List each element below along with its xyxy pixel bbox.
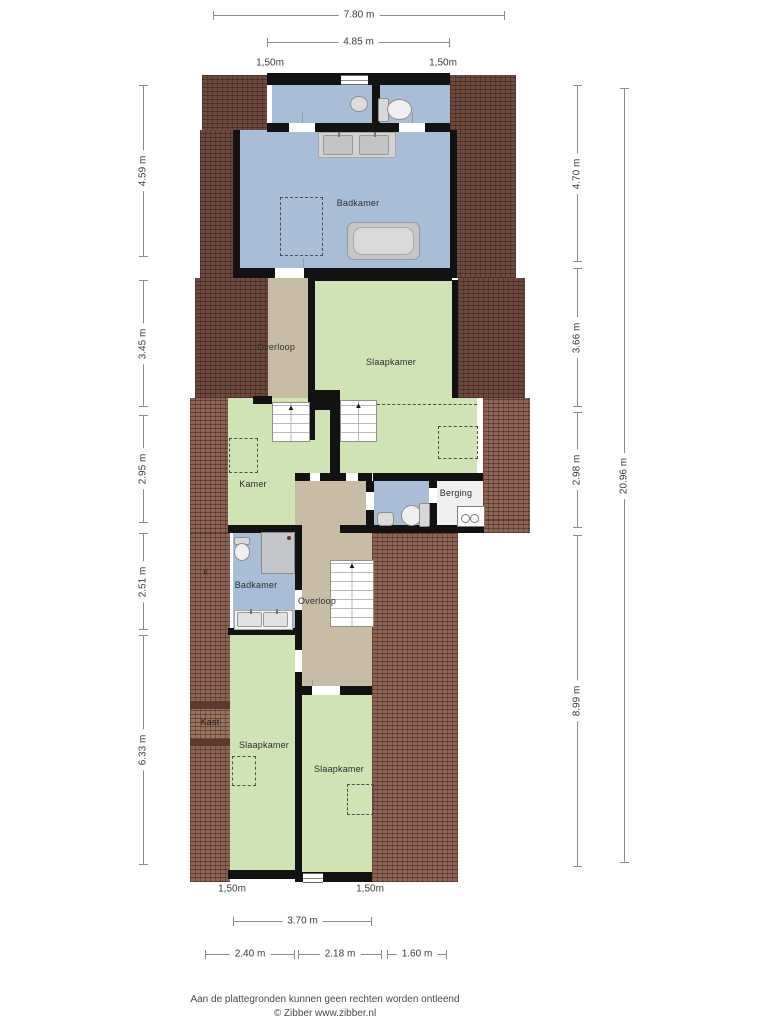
window	[303, 873, 323, 883]
dimension-line-top-780: 7.80 m	[213, 10, 505, 20]
door-opening	[289, 123, 315, 132]
dimension-label: 2.51 m	[138, 561, 149, 602]
door-opening	[275, 268, 304, 278]
door-opening	[312, 686, 340, 695]
dimension-label: 3.70 m	[282, 916, 323, 927]
dimension-line-top-485: 4.85 m	[267, 37, 450, 47]
room-label-overloop-lower: Overloop	[298, 596, 336, 606]
dimension-line-bottom-370: 3.70 m	[233, 916, 372, 926]
room-label-k-marker: K	[204, 570, 209, 577]
toilet-icon	[234, 543, 250, 561]
wall	[228, 870, 302, 879]
dimension-label: 4.59 m	[138, 151, 149, 192]
dimension-label-150-top-right: 1,50m	[429, 58, 457, 69]
dimension-label: 6.33 m	[138, 730, 149, 771]
boiler-icon	[457, 506, 485, 527]
sink-icon	[263, 612, 288, 627]
dimension-label: 7.80 m	[339, 10, 380, 21]
roof-area	[195, 278, 268, 398]
footer-credit: © Zibber www.zibber.nl	[80, 1007, 570, 1021]
door-opening	[366, 492, 374, 510]
dimension-line-right-298: 2.98 m	[572, 412, 582, 528]
wardrobe-dashed	[438, 426, 478, 459]
sink-icon	[323, 135, 353, 155]
wardrobe-dashed	[229, 438, 258, 473]
door-opening	[399, 123, 425, 132]
toilet-icon	[387, 99, 412, 120]
wall	[295, 473, 372, 481]
door-opening	[295, 650, 302, 672]
dimension-label-150-top-left: 1,50m	[256, 58, 284, 69]
wall	[450, 130, 457, 278]
door-leaf	[412, 112, 413, 123]
dimension-line-left-251: 2.51 m	[138, 533, 148, 630]
wardrobe-dashed	[347, 784, 374, 815]
staircase	[272, 402, 310, 442]
door-opening	[310, 473, 320, 481]
dimension-line-right-470: 4.70 m	[572, 85, 582, 262]
door-leaf	[302, 112, 303, 123]
dimension-label: 2.18 m	[320, 949, 361, 960]
shower-icon	[261, 532, 295, 574]
sink-icon	[359, 135, 389, 155]
dimension-line-right-2096: 20.96 m	[619, 88, 629, 863]
wall	[330, 398, 340, 478]
bathtub-icon	[347, 222, 420, 260]
room-label-berging: Berging	[440, 488, 472, 498]
floorplan-canvas: Badkamer Overloop Slaapkamer Kamer Bergi…	[0, 0, 768, 1024]
room-slaapkamer-right	[302, 694, 372, 872]
dimension-label-150-bottom-left: 1,50m	[218, 884, 246, 895]
wall	[253, 396, 272, 404]
sink-icon	[237, 612, 262, 627]
dimension-label-150-bottom-right: 1,50m	[356, 884, 384, 895]
window	[341, 75, 368, 85]
washbasin-icon	[350, 96, 368, 112]
knee-wall-dashline	[377, 404, 477, 405]
dimension-line-right-899: 8.99 m	[572, 535, 582, 867]
dimension-line-bottom-218: 2.18 m	[298, 949, 382, 959]
dimension-line-bottom-240: 2.40 m	[205, 949, 295, 959]
dimension-label: 3.45 m	[138, 323, 149, 364]
wall	[452, 280, 458, 398]
room-label-slaapkamer-left: Slaapkamer	[239, 740, 289, 750]
dimension-line-right-366: 3.66 m	[572, 268, 582, 407]
roof-area	[458, 278, 525, 398]
room-label-badkamer-small: Badkamer	[235, 580, 278, 590]
door-leaf	[303, 258, 304, 268]
dimension-line-left-345: 3.45 m	[138, 280, 148, 407]
staircase	[330, 560, 374, 627]
staircase	[340, 400, 377, 442]
wardrobe-dashed	[232, 756, 256, 786]
dimension-line-left-295: 2.95 m	[138, 415, 148, 523]
roof-area	[190, 398, 230, 533]
roof-area	[372, 533, 458, 882]
dimension-label: 20.96 m	[619, 452, 630, 498]
door-opening	[429, 488, 437, 503]
room-label-slaapkamer-upper: Slaapkamer	[366, 357, 416, 367]
dimension-label: 8.99 m	[572, 681, 583, 722]
roof-area	[483, 398, 530, 520]
room-slaapkamer-upper	[313, 280, 452, 398]
dimension-line-bottom-160: 1.60 m	[387, 949, 447, 959]
washbasin-icon	[377, 512, 394, 526]
toilet-icon	[419, 503, 430, 527]
wall	[233, 130, 240, 278]
dimension-label: 2.95 m	[138, 449, 149, 490]
dimension-label: 2.98 m	[572, 450, 583, 491]
room-overloop-upper	[268, 276, 310, 398]
dimension-line-left-459: 4.59 m	[138, 85, 148, 257]
room-label-kast: Kast	[201, 717, 220, 727]
shower-area	[280, 197, 323, 256]
footer: Aan de plattegronden kunnen geen rechten…	[80, 993, 570, 1021]
dimension-label: 3.66 m	[572, 317, 583, 358]
kast-wall	[190, 739, 232, 746]
roof-area	[450, 75, 516, 278]
room-label-overloop-upper: Overloop	[257, 342, 295, 352]
dimension-label: 1.60 m	[397, 949, 438, 960]
wall	[373, 473, 483, 481]
dimension-label: 2.40 m	[230, 949, 271, 960]
dimension-label: 4.85 m	[338, 37, 379, 48]
room-label-slaapkamer-right: Slaapkamer	[314, 764, 364, 774]
wall	[295, 533, 302, 882]
door-leaf	[312, 680, 313, 686]
wall	[308, 274, 452, 281]
footer-disclaimer: Aan de plattegronden kunnen geen rechten…	[80, 993, 570, 1007]
room-slaapkamer-left	[230, 635, 295, 870]
dimension-label: 4.70 m	[572, 153, 583, 194]
dimension-line-left-633: 6.33 m	[138, 635, 148, 865]
room-label-badkamer-top: Badkamer	[337, 198, 380, 208]
kast-wall	[190, 702, 232, 709]
room-label-kamer: Kamer	[239, 479, 267, 489]
roof-area	[202, 75, 267, 132]
door-opening	[346, 473, 358, 481]
